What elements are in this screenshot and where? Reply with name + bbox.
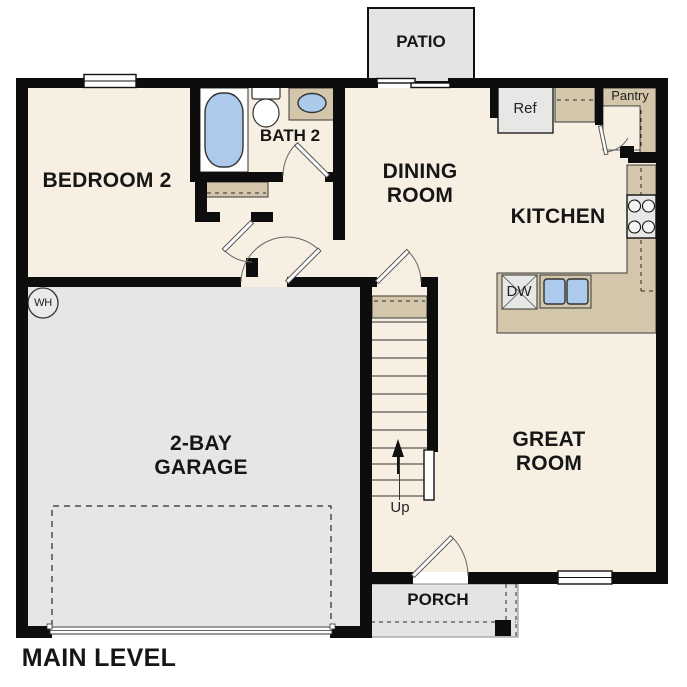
closet-shelf: [205, 182, 268, 197]
bedroom-bath-wall: [190, 88, 200, 172]
sink-basin-left: [544, 279, 565, 304]
bath-sink: [298, 94, 326, 113]
ref-nook-stub: [490, 85, 498, 118]
pantry-label: Pantry: [611, 84, 649, 108]
burner: [643, 200, 655, 212]
pantry-interior: [603, 106, 640, 150]
garage-wall-top-c: [421, 277, 438, 287]
water-heater-label: WH: [34, 291, 52, 315]
closet-lip: [195, 212, 220, 222]
toilet-bowl: [253, 99, 279, 127]
bedroom2-label: BEDROOM 2: [43, 169, 172, 193]
floor-plan: PATIO BEDROOM 2 BATH 2 DINING ROOM KITCH…: [0, 0, 687, 687]
garage-stair-wall: [360, 287, 372, 638]
cabinet-by-ref: [555, 85, 595, 122]
stairs-up-label: Up: [390, 496, 409, 520]
pantry-corner-post: [620, 146, 634, 158]
floor-plan-drawing: [0, 0, 687, 687]
dw-label: DW: [507, 280, 532, 304]
patio-label: PATIO: [396, 30, 445, 54]
garage-wall-bottom-left: [16, 626, 52, 638]
plan-title: MAIN LEVEL: [22, 646, 176, 670]
porch-post: [495, 620, 511, 636]
great-room-label: GREAT ROOM: [513, 428, 586, 476]
garage-door-end-left: [47, 624, 52, 629]
dining-room-label: DINING ROOM: [383, 160, 458, 208]
garage-label: 2-BAY GARAGE: [154, 432, 247, 480]
exterior-wall-left: [16, 78, 28, 638]
exterior-wall-top-left: [16, 78, 378, 88]
patio-slider-panel-1: [377, 79, 415, 84]
ref-label: Ref: [513, 97, 536, 121]
stair-closet-shelf: [372, 296, 427, 318]
garage-wall-top-a: [16, 277, 241, 287]
sink-basin-right: [567, 279, 588, 304]
stair-railing: [424, 450, 434, 500]
pantry-left-stub: [595, 85, 603, 125]
garage-wall-top-b: [287, 277, 377, 287]
bath2-label: BATH 2: [260, 124, 320, 148]
closet-right-post: [251, 212, 273, 222]
garage-door-end-right: [330, 624, 335, 629]
burner: [643, 221, 655, 233]
bath-bottom-wall: [190, 172, 283, 182]
bath-dining-wall: [333, 88, 345, 240]
kitchen-label: KITCHEN: [511, 205, 606, 229]
patio-slider-panel-2: [411, 83, 450, 88]
burner: [629, 200, 641, 212]
bathtub: [205, 93, 243, 167]
bedroom-door-post: [246, 258, 258, 277]
stair-right-wall: [427, 287, 438, 452]
burner: [629, 221, 641, 233]
porch-label: PORCH: [407, 588, 468, 612]
